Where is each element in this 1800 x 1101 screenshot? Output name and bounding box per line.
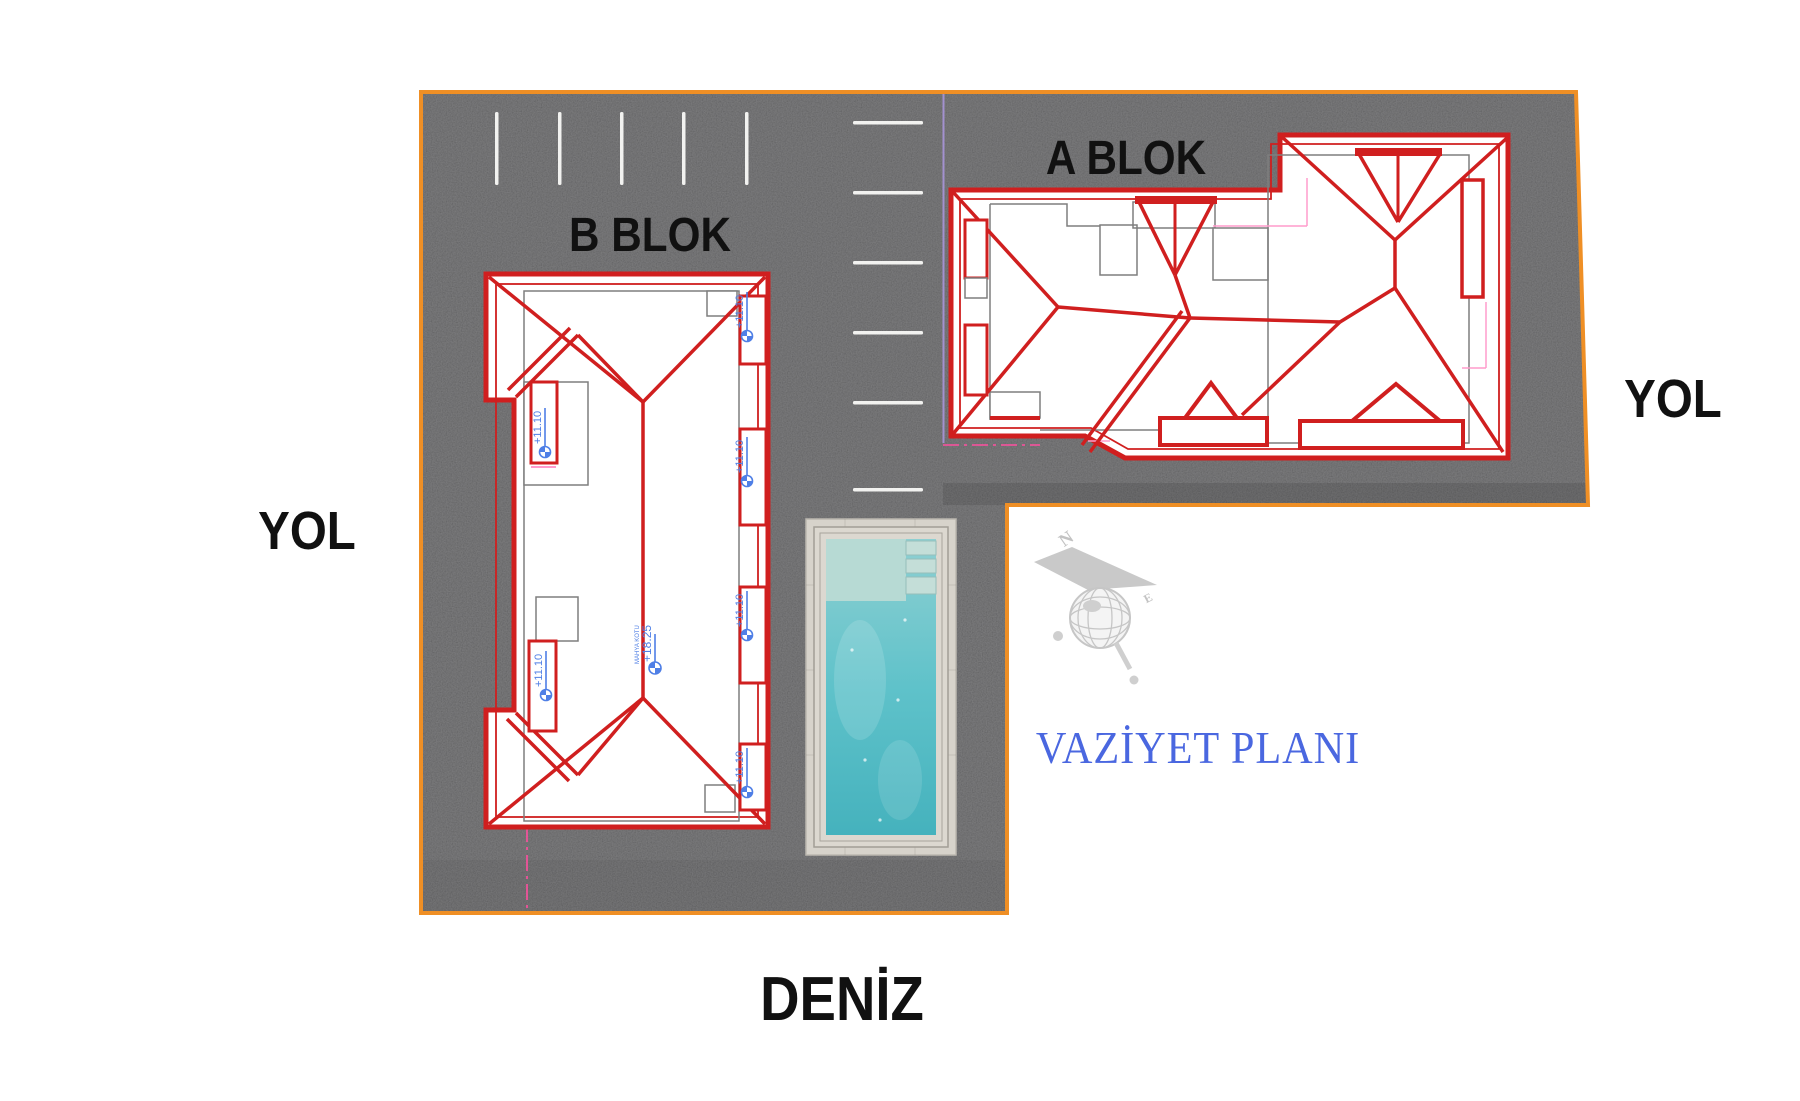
svg-text:+11.10: +11.10 [734, 440, 746, 473]
plan-title: VAZİYET PLANI [1022, 725, 1374, 771]
road-label-right: YOL [1617, 372, 1728, 426]
pool-steps [906, 541, 936, 594]
compass-icon: N E [1034, 527, 1157, 685]
a-block-label: A BLOK [1035, 135, 1217, 183]
b-block-building [486, 274, 768, 827]
sea-label: DENİZ [749, 969, 935, 1031]
compass-north-label: N [1055, 527, 1077, 551]
svg-text:+11.10: +11.10 [734, 295, 746, 328]
road-label-left: YOL [251, 504, 362, 558]
svg-text:+11.10: +11.10 [734, 751, 746, 784]
b-block-label: B BLOK [558, 212, 742, 260]
site-plan-canvas: +11.10 +11.10 +11.10 +11.10 +11.10 [0, 0, 1800, 1101]
svg-text:MAHYA KOTU: MAHYA KOTU [635, 625, 641, 664]
svg-text:+11.10: +11.10 [532, 411, 544, 444]
pool-shallow-shelf [826, 539, 906, 601]
pool [806, 519, 956, 855]
svg-text:+18.25: +18.25 [640, 625, 654, 662]
svg-text:+11.10: +11.10 [533, 654, 545, 687]
svg-text:+11.10: +11.10 [734, 594, 746, 627]
compass-east-label: E [1141, 590, 1155, 606]
